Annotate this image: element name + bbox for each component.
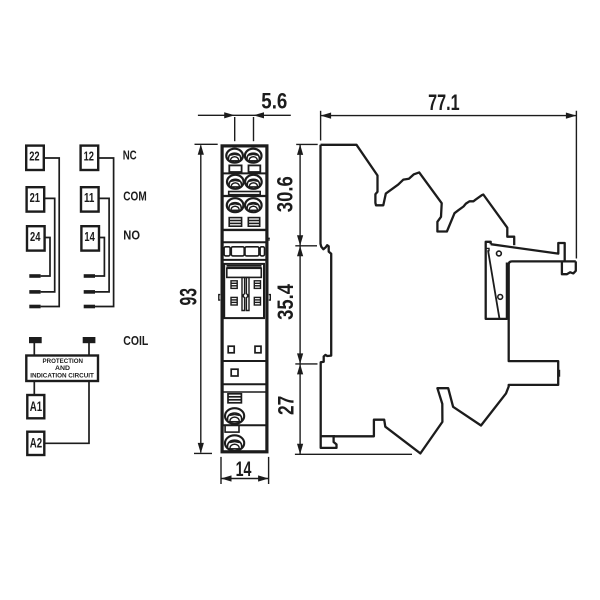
svg-text:27: 27 [274, 396, 299, 415]
svg-text:24: 24 [30, 229, 41, 244]
svg-text:93: 93 [176, 288, 203, 306]
svg-text:5.6: 5.6 [261, 89, 287, 114]
svg-text:A1: A1 [30, 399, 43, 414]
svg-text:21: 21 [30, 190, 40, 205]
svg-text:NC: NC [123, 148, 137, 162]
svg-text:30.6: 30.6 [273, 176, 298, 212]
svg-text:PROTECTION: PROTECTION [43, 358, 84, 365]
svg-text:COIL: COIL [123, 334, 148, 348]
svg-text:14: 14 [236, 458, 252, 481]
svg-text:22: 22 [29, 148, 39, 163]
svg-text:14: 14 [84, 229, 95, 244]
svg-text:12: 12 [84, 148, 94, 163]
svg-text:35.4: 35.4 [273, 283, 298, 320]
svg-text:11: 11 [84, 190, 94, 205]
svg-text:COM: COM [123, 189, 146, 203]
svg-text:NO: NO [123, 229, 140, 243]
svg-text:INDICATION CIRCUIT: INDICATION CIRCUIT [30, 373, 94, 380]
svg-text:AND: AND [55, 365, 70, 372]
svg-text:A2: A2 [30, 436, 42, 451]
svg-text:77.1: 77.1 [428, 90, 460, 115]
